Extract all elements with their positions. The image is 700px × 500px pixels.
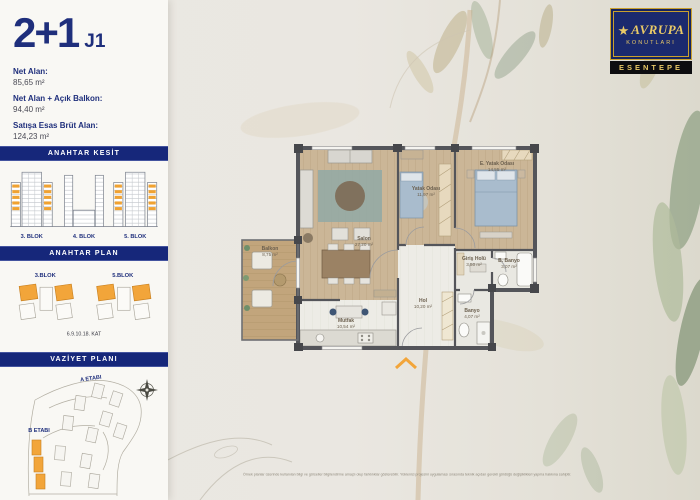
room-area: 10,20 m² xyxy=(414,304,433,309)
room-area: 8,75 m² xyxy=(262,252,278,257)
site-highlighted-blocks xyxy=(32,440,45,489)
section-title: ANAHTAR KESİT xyxy=(48,150,120,157)
room-area: 11,97 m² xyxy=(417,192,435,197)
room-area: 27,20 m² xyxy=(355,242,374,247)
brand-subtitle: KONUTLARI xyxy=(626,40,675,46)
area-row: Net Alan + Açık Balkon: 94,40 m² xyxy=(13,93,163,115)
key-plan-block-label: 5.BLOK xyxy=(112,273,134,279)
disclaimer-text: Örnek planlar üzerinde kullanılan bilgi … xyxy=(243,473,603,477)
info-sidebar: 2+1 J1 Net Alan: 85,65 m² Net Alan + Açı… xyxy=(0,0,168,500)
area-row: Net Alan: 85,65 m² xyxy=(13,66,163,88)
area-value: 85,65 m² xyxy=(13,77,163,88)
section-title: ANAHTAR PLAN xyxy=(49,250,119,257)
site-buildings xyxy=(55,383,127,489)
brand-logo: ★ AVRUPA KONUTLARI ESENTEPE xyxy=(610,8,692,74)
key-plan-group-b: 5.BLOK xyxy=(97,273,151,320)
brochure-page: 2+1 J1 Net Alan: 85,65 m² Net Alan + Açı… xyxy=(0,0,700,500)
room-area: 4,07 m² xyxy=(464,314,480,319)
block-5-label: 5. BLOK xyxy=(124,234,147,240)
room-area: 10,54 m² xyxy=(337,324,356,329)
section-header-anahtar-plan: ANAHTAR PLAN xyxy=(0,246,168,261)
section-header-vaziyet-plani: VAZİYET PLANI xyxy=(0,352,168,367)
unit-title: 2+1 J1 xyxy=(13,12,105,54)
area-label: Net Alan: xyxy=(13,66,163,77)
site-plan-diagram: A ETABI B ETABI xyxy=(4,368,164,498)
star-icon: ★ xyxy=(618,24,630,37)
key-plan-block-label: 3.BLOK xyxy=(35,273,57,279)
block-3-label: 3. BLOK xyxy=(21,234,44,240)
block-4-elevation xyxy=(65,175,104,226)
hol-furniture xyxy=(442,292,453,340)
unit-type: 2+1 xyxy=(13,12,78,54)
area-info-list: Net Alan: 85,65 m² Net Alan + Açık Balko… xyxy=(13,66,163,147)
area-value: 94,40 m² xyxy=(13,104,163,115)
room-area: 3,07 m² xyxy=(501,264,517,269)
project-name: ESENTEPE xyxy=(619,63,683,72)
area-label: Net Alan + Açık Balkon: xyxy=(13,93,163,104)
room-area: 3,50 m² xyxy=(466,262,482,267)
stage-b-label: B ETABI xyxy=(28,428,50,434)
section-header-anahtar-kesit: ANAHTAR KESİT xyxy=(0,146,168,161)
unit-code: J1 xyxy=(84,31,105,53)
block-3-elevation xyxy=(11,172,52,226)
floor-plan: Salon 27,20 m² Yatak Odası 11,97 m² E. Y… xyxy=(240,140,540,370)
room-area: 14,55 m² xyxy=(488,167,507,172)
block-5-elevation xyxy=(114,172,157,226)
compass-rose-icon xyxy=(136,379,158,401)
area-value: 124,23 m² xyxy=(13,131,163,142)
key-section-diagram: 3. BLOK 4. BLOK 5. BLOK xyxy=(4,162,164,246)
block-4-label: 4. BLOK xyxy=(73,234,96,240)
key-plan-group-a: 3.BLOK xyxy=(19,273,73,320)
logo-emblem: ★ AVRUPA KONUTLARI xyxy=(613,11,689,57)
key-plan-floor-caption: 6.9.10.18. KAT xyxy=(67,331,102,337)
project-name-band: ESENTEPE xyxy=(610,61,692,74)
area-row: Satışa Esas Brüt Alan: 124,23 m² xyxy=(13,120,163,142)
stage-a-label: A ETABI xyxy=(80,374,102,383)
entrance-arrow-icon xyxy=(396,359,416,368)
area-label: Satışa Esas Brüt Alan: xyxy=(13,120,163,131)
logo-frame: ★ AVRUPA KONUTLARI xyxy=(610,8,692,60)
brand-name: AVRUPA xyxy=(631,22,684,38)
section-title: VAZİYET PLANI xyxy=(50,356,118,363)
key-plan-diagram: 3.BLOK 5.BLOK 6.9.10.18. KAT xyxy=(4,260,164,348)
